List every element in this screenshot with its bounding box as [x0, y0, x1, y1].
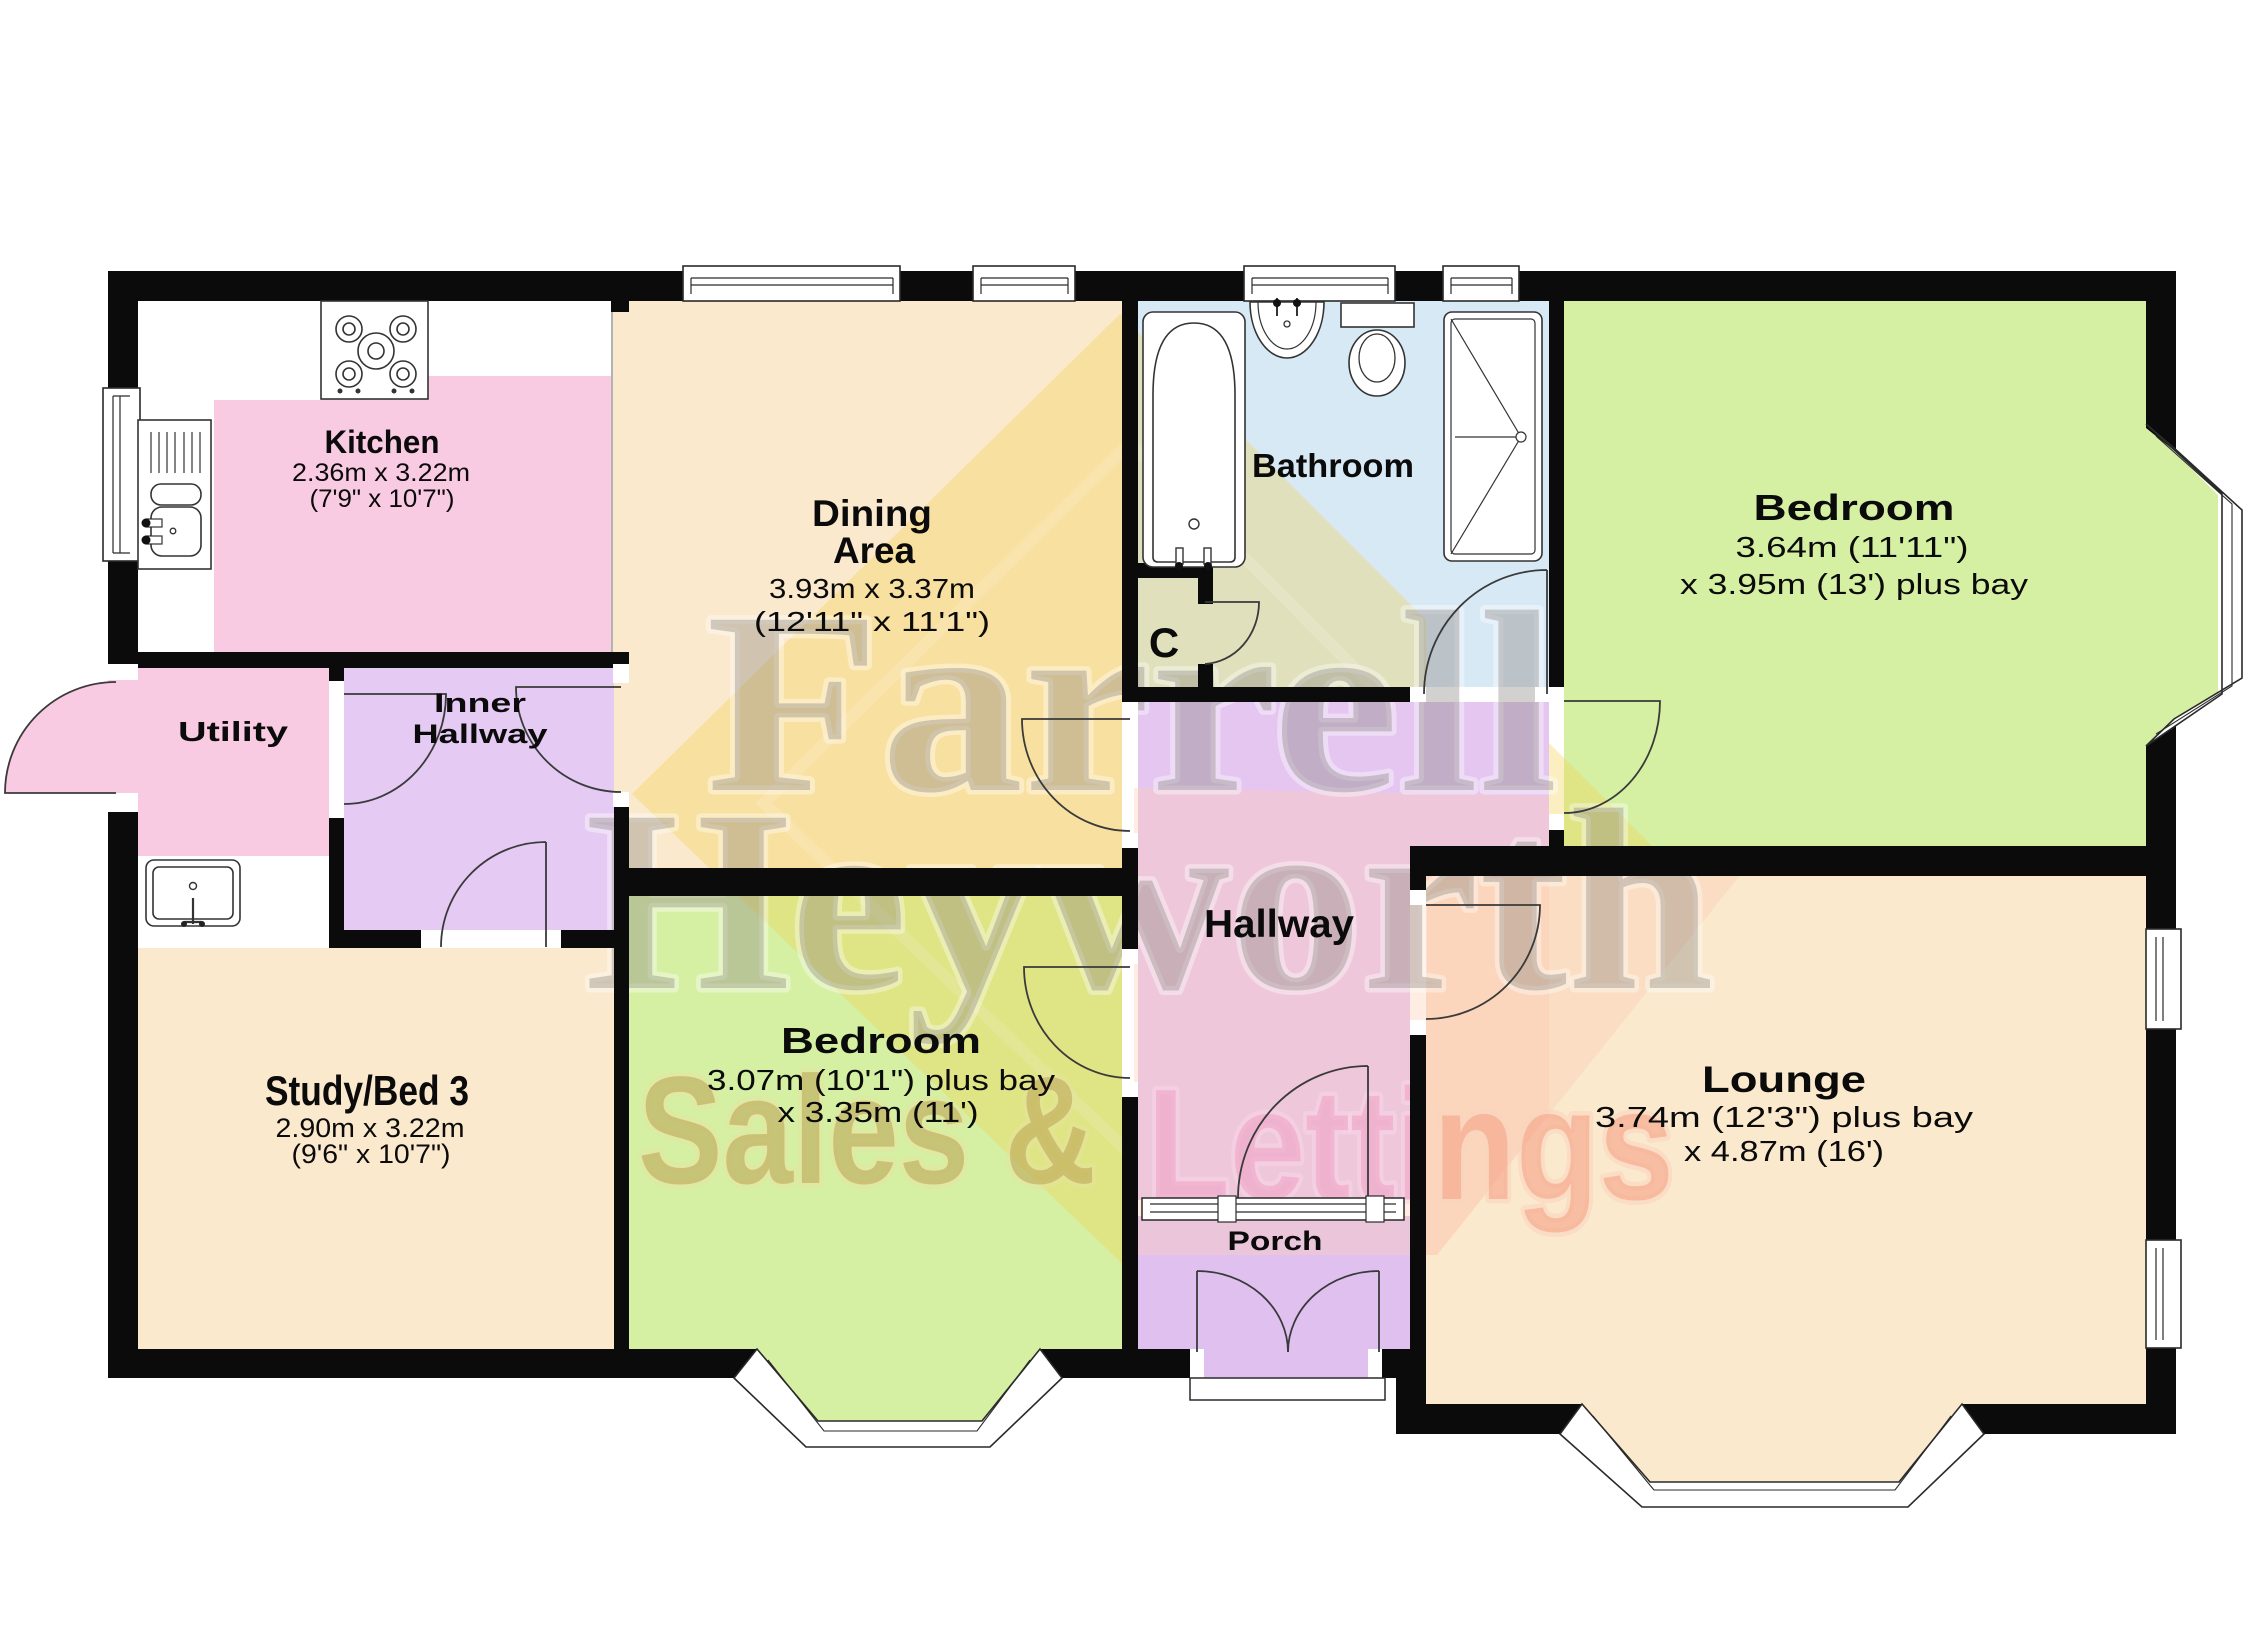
svg-text:Dining: Dining	[812, 493, 932, 534]
svg-text:Area: Area	[833, 530, 915, 571]
svg-text:2.36m x 3.22m: 2.36m x 3.22m	[292, 459, 470, 487]
svg-text:x 3.35m (11'): x 3.35m (11')	[778, 1097, 979, 1129]
svg-text:x 4.87m (16'): x 4.87m (16')	[1684, 1136, 1884, 1168]
svg-text:Inner: Inner	[434, 688, 527, 718]
svg-text:Bedroom: Bedroom	[781, 1020, 981, 1061]
svg-text:3.74m (12'3") plus bay: 3.74m (12'3") plus bay	[1595, 1102, 1974, 1134]
svg-text:Hallway: Hallway	[1204, 903, 1354, 946]
svg-text:x 3.95m (13') plus bay: x 3.95m (13') plus bay	[1680, 569, 2029, 601]
svg-text:Porch: Porch	[1228, 1226, 1323, 1256]
svg-text:3.64m (11'11"): 3.64m (11'11")	[1736, 532, 1969, 564]
svg-text:Study/Bed 3: Study/Bed 3	[265, 1067, 469, 1114]
svg-text:3.07m (10'1") plus bay: 3.07m (10'1") plus bay	[707, 1065, 1056, 1097]
svg-text:Kitchen: Kitchen	[325, 424, 440, 460]
svg-text:Bathroom: Bathroom	[1252, 447, 1414, 484]
svg-text:Heyworth: Heyworth	[585, 757, 1714, 1045]
svg-text:3.93m x 3.37m: 3.93m x 3.37m	[769, 573, 975, 604]
svg-text:Utility: Utility	[178, 716, 289, 747]
svg-text:(12'11" x 11'1"): (12'11" x 11'1")	[754, 606, 990, 637]
svg-text:Lounge: Lounge	[1702, 1059, 1866, 1100]
svg-text:C: C	[1149, 619, 1179, 666]
svg-text:Bedroom: Bedroom	[1754, 487, 1955, 528]
svg-text:(9'6" x 10'7"): (9'6" x 10'7")	[292, 1139, 451, 1169]
svg-text:Hallway: Hallway	[413, 719, 548, 749]
svg-text:(7'9" x 10'7"): (7'9" x 10'7")	[310, 485, 455, 513]
